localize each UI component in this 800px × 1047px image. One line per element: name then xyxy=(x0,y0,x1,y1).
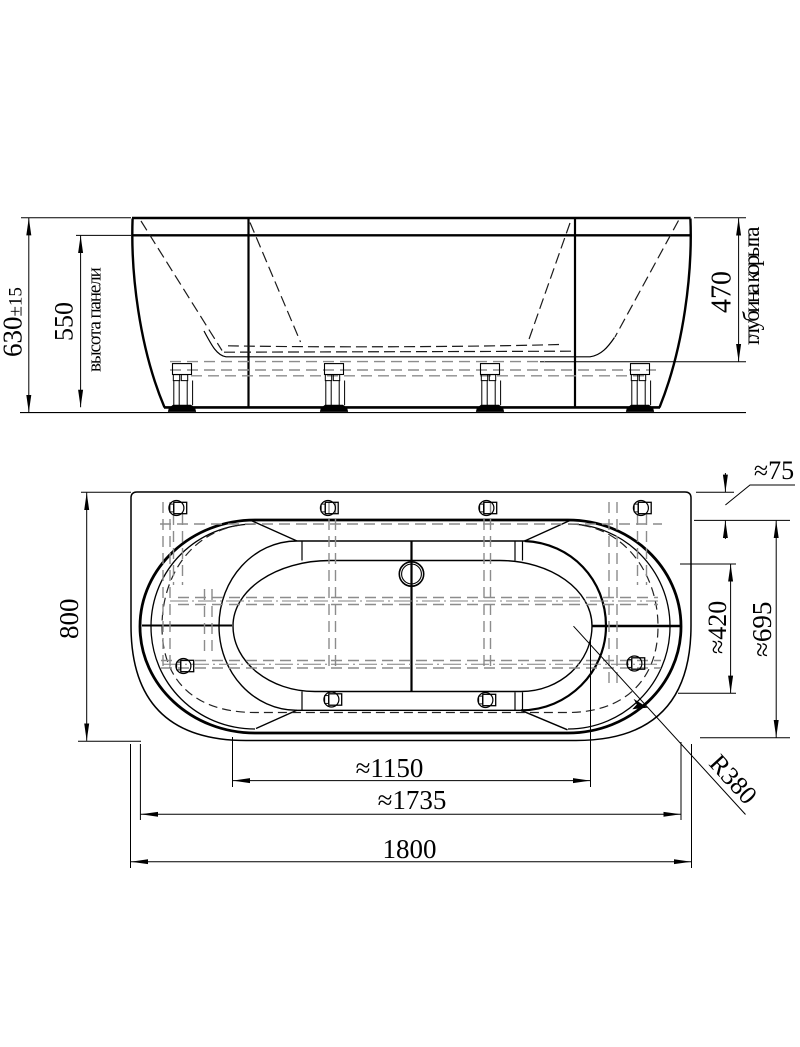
svg-text:800: 800 xyxy=(54,599,84,640)
svg-text:≈420: ≈420 xyxy=(703,601,732,654)
svg-text:высота панели: высота панели xyxy=(85,267,106,372)
svg-text:550: 550 xyxy=(50,302,79,341)
svg-text:глубина корыта: глубина корыта xyxy=(739,227,764,345)
svg-text:470: 470 xyxy=(707,271,738,313)
svg-text:≈1735: ≈1735 xyxy=(378,785,447,815)
svg-text:≈1150: ≈1150 xyxy=(356,753,424,783)
svg-text:≈695: ≈695 xyxy=(747,602,777,657)
svg-text:1800: 1800 xyxy=(383,834,437,864)
svg-text:630±15: 630±15 xyxy=(0,287,28,357)
svg-text:≈75: ≈75 xyxy=(754,456,794,485)
svg-text:R380: R380 xyxy=(703,749,762,810)
